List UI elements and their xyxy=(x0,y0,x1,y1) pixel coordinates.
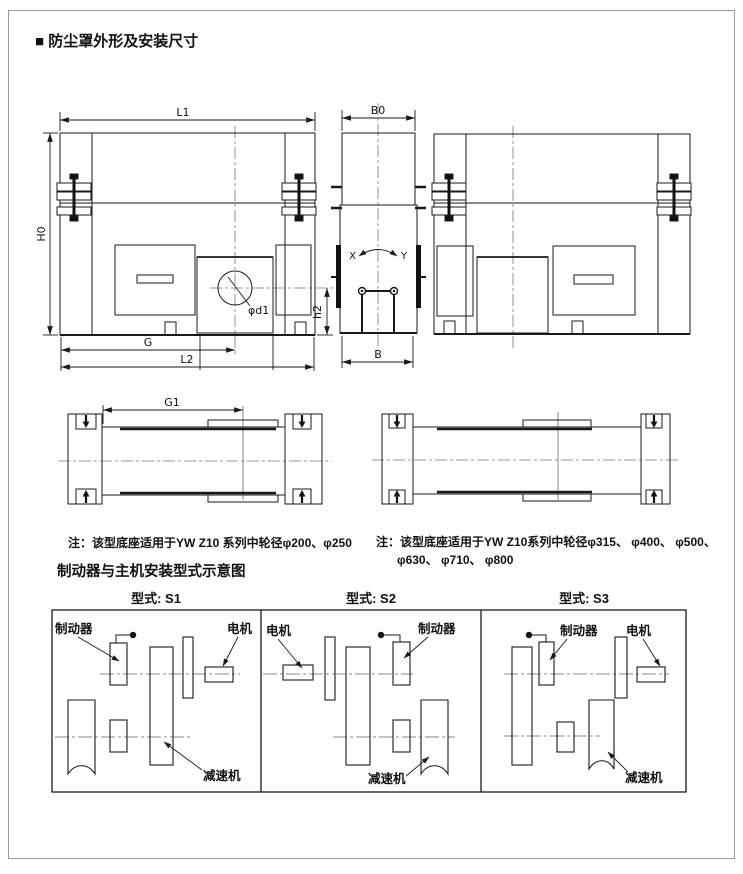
bolt-clamp xyxy=(432,174,466,221)
panel-s3 xyxy=(504,632,669,772)
document-page: ■ 防尘罩外形及安装尺寸 xyxy=(0,0,743,874)
note-right-line1: 注：该型底座适用于YW Z10系列中轮径φ315、 φ400、 φ500、 xyxy=(376,534,716,549)
panel-s2 xyxy=(263,632,455,776)
bolt-mark xyxy=(651,415,656,427)
panel-s1 xyxy=(55,632,240,774)
dim-label-h0: H0 xyxy=(35,226,48,241)
bolt-mark xyxy=(394,491,399,503)
section-title: 制动器与主机安装型式示意图 xyxy=(57,562,246,580)
bolt-mark xyxy=(394,415,399,427)
label-motor-s3: 电机 xyxy=(626,623,652,638)
type-header-s1: 型式: S1 xyxy=(131,591,181,606)
bolt-mark xyxy=(651,491,656,503)
page-border xyxy=(9,11,735,859)
dim-label-l2: L2 xyxy=(180,353,193,366)
bolt-mark xyxy=(299,491,304,503)
label-motor-s1: 电机 xyxy=(227,621,253,636)
note-right-line2: φ630、 φ710、 φ800 xyxy=(397,553,514,567)
dim-label-b: B xyxy=(374,348,382,361)
dim-label-g1: G1 xyxy=(164,396,180,409)
dim-label-phi-d1: φd1 xyxy=(248,304,269,317)
dim-label-g: G xyxy=(144,336,153,349)
dim-label-b0: B0 xyxy=(371,104,386,117)
dim-label-l1: L1 xyxy=(176,106,189,119)
label-reducer-s2: 减速机 xyxy=(368,771,406,786)
note-left: 注：该型底座适用于YW Z10 系列中轮径φ200、φ250 xyxy=(68,535,352,550)
label-brake-s3: 制动器 xyxy=(560,623,598,638)
bolt-mark xyxy=(83,415,88,427)
page-title: ■ 防尘罩外形及安装尺寸 xyxy=(35,32,198,50)
bolt-mark xyxy=(299,415,304,427)
bolt-clamp xyxy=(657,174,691,221)
type-header-s3: 型式: S3 xyxy=(559,591,609,606)
bolt-clamp xyxy=(57,174,91,221)
label-reducer-s1: 减速机 xyxy=(203,768,241,783)
phi-d1-leader xyxy=(228,277,250,306)
front-view-right xyxy=(432,126,691,350)
label-motor-s2: 电机 xyxy=(266,623,292,638)
label-brake-s2: 制动器 xyxy=(418,621,456,636)
type-header-s2: 型式: S2 xyxy=(346,591,396,606)
side-view xyxy=(331,103,426,368)
front-view-left xyxy=(43,112,333,371)
bolt-mark xyxy=(83,491,88,503)
label-brake-s1: 制动器 xyxy=(55,621,93,636)
rotation-label-y: Y xyxy=(400,251,408,262)
top-view-left xyxy=(58,405,332,504)
bolt-clamp xyxy=(282,174,316,221)
label-reducer-s3: 减速机 xyxy=(625,770,663,785)
top-view-right xyxy=(372,412,680,504)
rotation-label-x: X xyxy=(349,251,356,262)
dim-label-h2: h2 xyxy=(311,305,324,319)
